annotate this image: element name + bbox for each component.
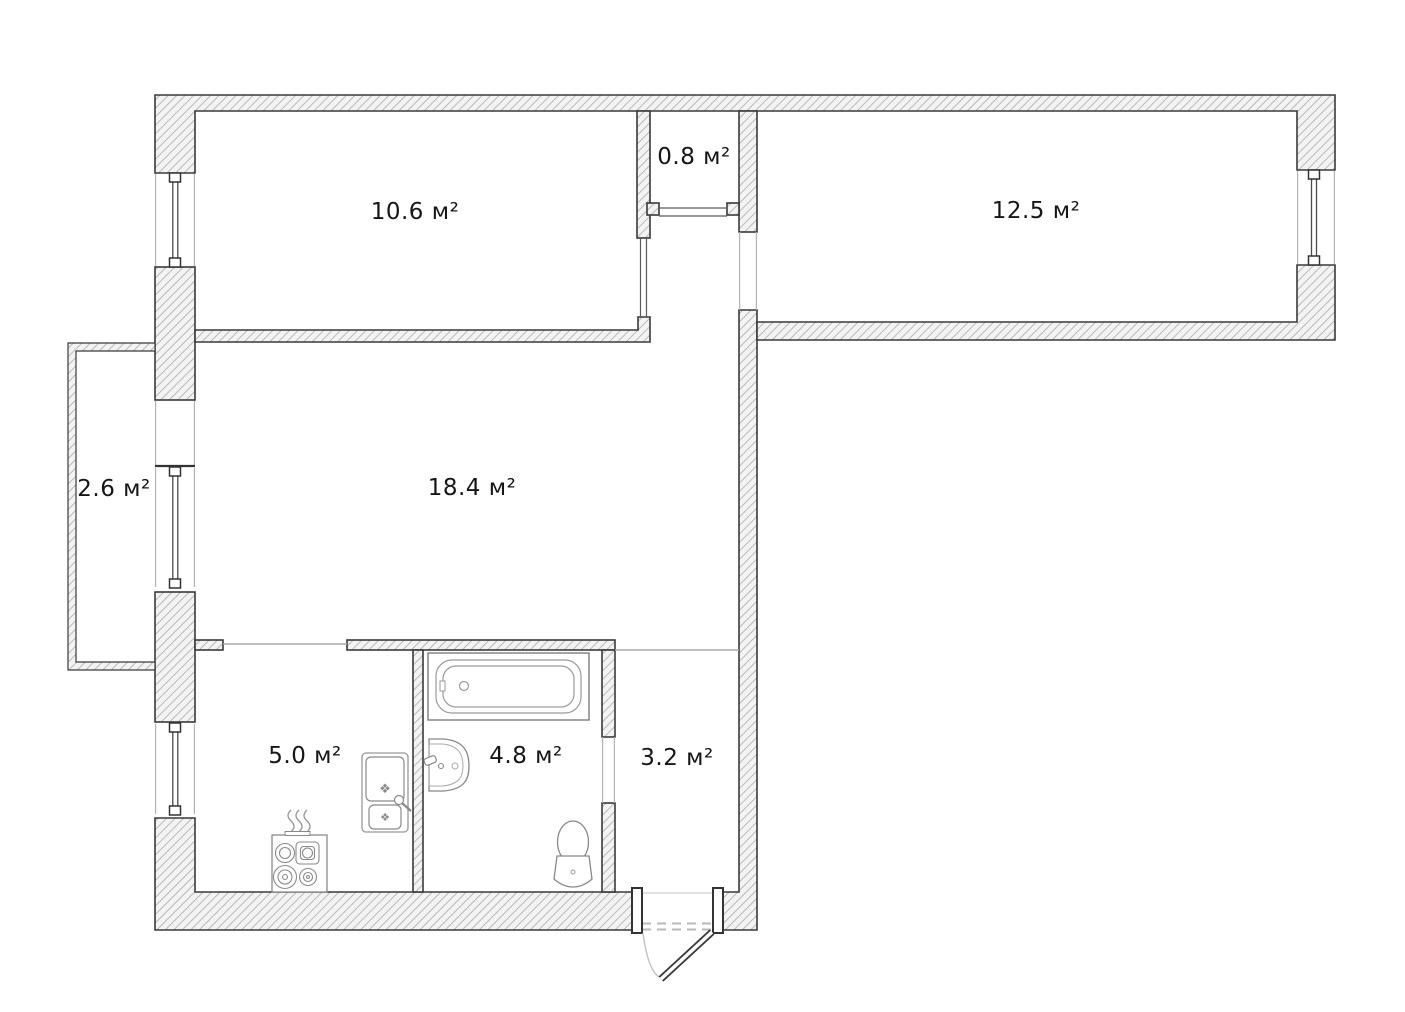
- bathroom-hallway-wall-lower: [602, 803, 615, 892]
- door-swing-arc: [643, 933, 659, 977]
- walls: [68, 95, 1335, 930]
- toilet: [554, 821, 592, 887]
- room-label-living-room: 18.4 м²: [428, 475, 517, 501]
- closet-door-jamb: [647, 203, 659, 215]
- bathroom-top-wall: [347, 640, 615, 650]
- exterior-wall-left-pillar: [155, 267, 195, 400]
- steam-icon: [288, 810, 310, 832]
- tub-fitting: [440, 681, 445, 691]
- room-label-bedroom-top-left: 10.6 м²: [371, 199, 460, 225]
- bedroom2-door-opening: [740, 232, 757, 310]
- balcony-door-opening: [155, 401, 195, 466]
- window-kitchen: [156, 723, 195, 815]
- bathroom-hallway-wall-upper: [602, 650, 615, 737]
- exterior-wall-left-pillar: [155, 592, 195, 722]
- balcony-wall: [68, 343, 155, 670]
- drain-icon: ❖: [380, 811, 390, 824]
- closet-left-wall: [637, 111, 650, 238]
- room-label-hallway: 3.2 м²: [640, 745, 713, 771]
- corridor-right-wall: [723, 310, 757, 930]
- bathtub: [428, 653, 589, 720]
- bedroom1-door-opening: [641, 238, 647, 317]
- drain-icon: ❖: [379, 782, 391, 797]
- window-bedroom1: [156, 173, 195, 267]
- door-jamb: [713, 888, 723, 933]
- washbasin: [423, 739, 469, 791]
- closet-door-opening: [659, 208, 727, 216]
- window-living-room: [156, 467, 195, 588]
- room-label-kitchen: 5.0 м²: [268, 743, 341, 769]
- door-leaf: [661, 932, 712, 979]
- bedroom1-bottom-wall: [195, 317, 650, 342]
- room-label-bathroom: 4.8 м²: [489, 743, 562, 769]
- kitchen-sink: ❖ ❖: [362, 753, 411, 832]
- entrance-door: [632, 888, 723, 979]
- floor-plan: ❖ ❖ 10.6 м² 0.8 м² 12.5 м² 2.6 м² 18.4 м…: [0, 0, 1405, 1012]
- closet-door-jamb: [727, 203, 739, 215]
- bedroom2-bottom-wall: [757, 265, 1335, 340]
- kitchen-wall-stub: [195, 640, 223, 650]
- room-label-storage-closet: 0.8 м²: [657, 144, 730, 170]
- door-jamb: [632, 888, 642, 933]
- gas-stove: [272, 810, 327, 892]
- kitchen-bathroom-wall: [413, 650, 423, 892]
- closet-right-wall: [739, 111, 757, 232]
- room-label-balcony: 2.6 м²: [77, 476, 150, 502]
- bathroom-door-opening: [603, 737, 615, 803]
- window-bedroom2: [1298, 170, 1335, 265]
- room-label-bedroom-top-right: 12.5 м²: [992, 198, 1081, 224]
